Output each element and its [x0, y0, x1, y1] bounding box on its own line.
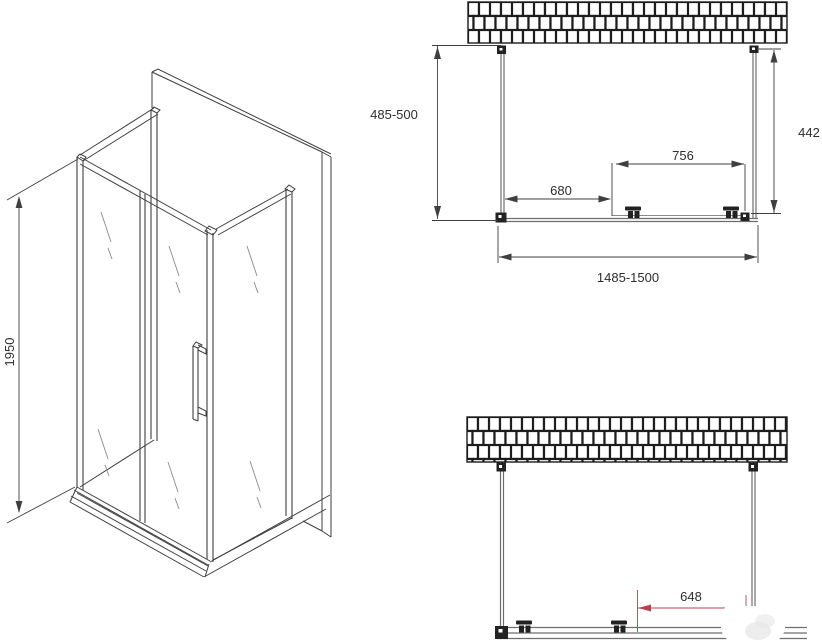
plan-view: 485-500 442 756 680 — [360, 0, 822, 300]
dimension-1485-1500: 1485-1500 — [498, 225, 758, 285]
right-depth-label: 442 — [798, 125, 820, 140]
opening-width-label: 648 — [680, 589, 702, 604]
right-wall-profile — [750, 46, 759, 219]
brick-wall-hatch — [467, 417, 787, 462]
dimension-680: 680 — [505, 183, 611, 203]
right-wall-profile — [749, 462, 759, 626]
brick-wall-hatch — [468, 2, 787, 43]
door-handle — [193, 342, 206, 421]
back-wall-panel — [152, 69, 331, 537]
dimension-1950: 1950 — [2, 159, 78, 523]
height-label: 1950 — [2, 338, 17, 367]
roller — [516, 621, 532, 633]
total-width-label: 1485-1500 — [597, 270, 659, 285]
glass-sparkle — [98, 212, 112, 476]
dimension-442: 442 — [751, 49, 820, 214]
left-wall-profile — [497, 462, 507, 628]
side-glass-panel-left — [77, 107, 160, 490]
sliding-door-unit — [77, 157, 217, 566]
roller — [611, 621, 627, 633]
roller — [625, 207, 641, 219]
front-view: 648 — [360, 400, 822, 643]
shower-tray — [70, 487, 330, 577]
door-width-label: 756 — [672, 148, 694, 163]
fixed-width-label: 680 — [550, 183, 572, 198]
glass-sparkle — [168, 246, 180, 509]
roller — [723, 207, 739, 219]
left-depth-label: 485-500 — [370, 107, 418, 122]
bottom-rail — [496, 207, 759, 223]
dimension-485-500: 485-500 — [370, 46, 501, 221]
dimension-756: 756 — [612, 148, 745, 216]
technical-drawing-canvas: 1950 — [0, 0, 822, 643]
side-glass-panel-right — [213, 185, 295, 560]
watermark-smudge — [721, 604, 785, 643]
left-wall-profile — [497, 46, 506, 223]
glass-sparkle — [247, 246, 261, 508]
